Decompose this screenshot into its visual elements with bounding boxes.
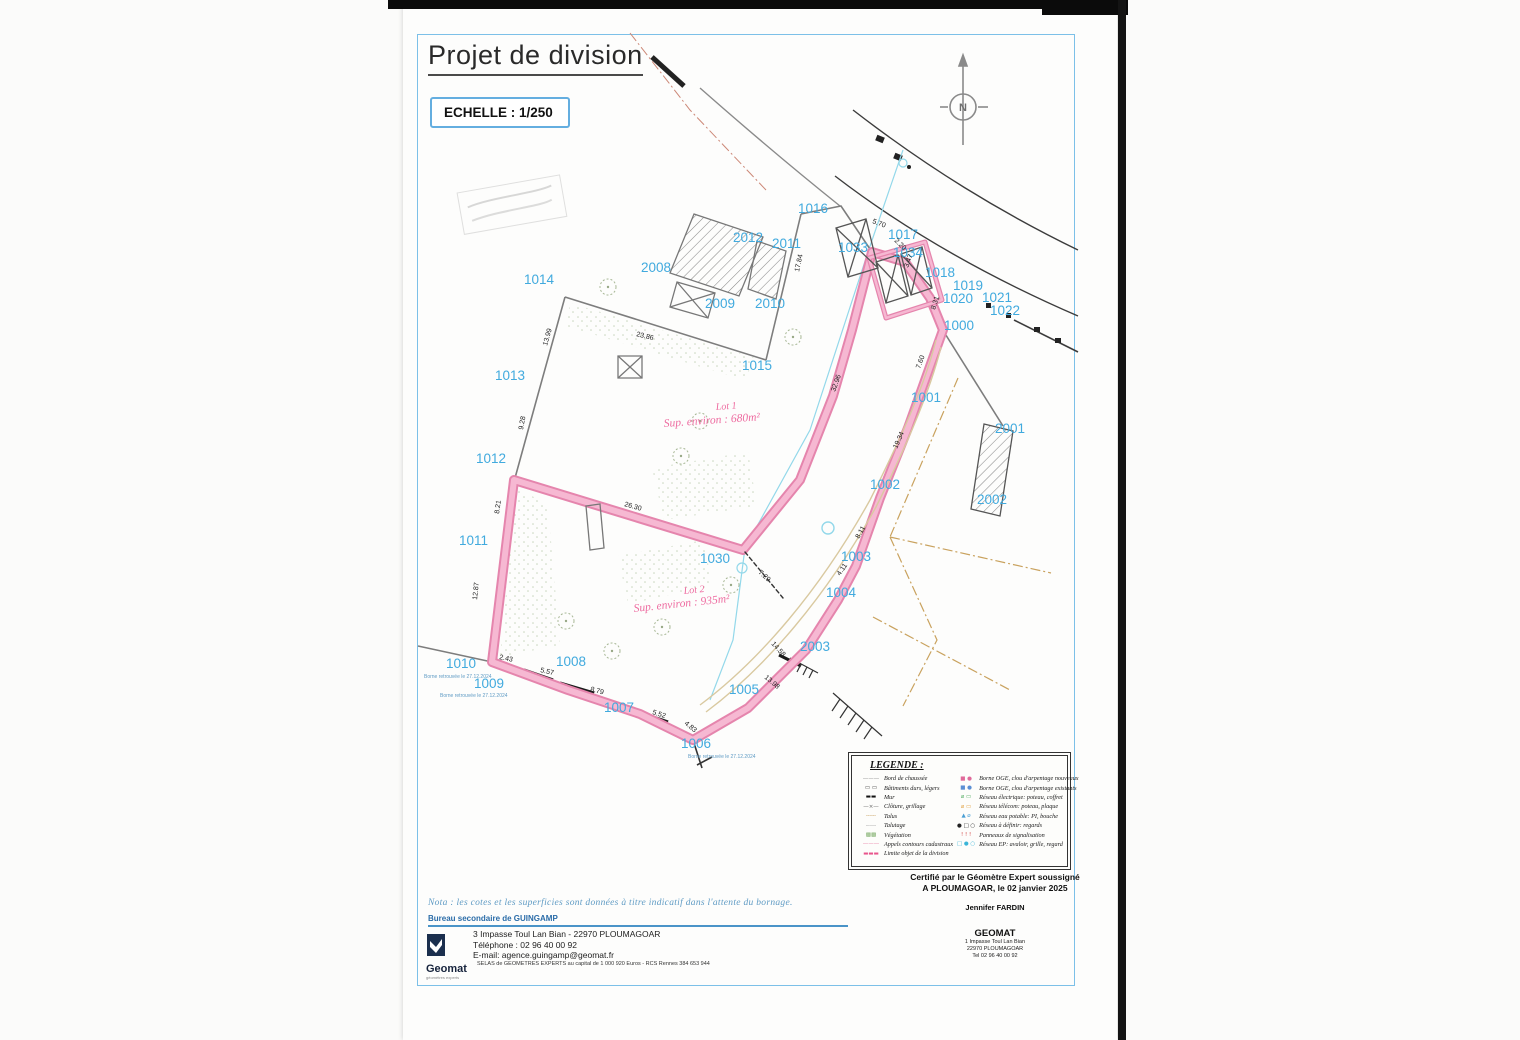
- faded-stamp: [457, 175, 567, 234]
- legend-row: ▬▬Mur: [858, 793, 953, 802]
- tree-center-dot: [661, 626, 663, 628]
- measurement-label: 9.28: [518, 416, 527, 431]
- parcel-label: 1015: [742, 358, 772, 373]
- borne-note: Borne retrouvée le 27.12.2024: [440, 693, 508, 699]
- legend-label: Végétation: [884, 832, 911, 839]
- legend-symbol: ╌╌╌: [858, 813, 884, 819]
- parcel-label: 1022: [990, 303, 1020, 318]
- cert-name: Jennifer FARDIN: [905, 903, 1085, 912]
- legend-symbol: ▬▬: [858, 794, 884, 800]
- measurement-label: 5.70: [871, 218, 886, 229]
- cert-addr2: 22970 PLOUMAGOAR: [905, 946, 1085, 953]
- parcel-label: 1020: [943, 291, 973, 306]
- legend-label: Réseau eau potable: PI, bouche: [979, 813, 1058, 820]
- legend-row: ● □ ○Réseau à définir: regards: [953, 821, 1078, 830]
- scanned-plan-page: N Lot 1 Sup. environ : 680m² Lot 2 Sup. …: [0, 0, 1520, 1040]
- legend-row: ▬▬▬Limite objet de la division: [858, 849, 953, 858]
- legend-symbol: ● □ ○: [953, 823, 979, 829]
- legend-row: ⌀ ▭Réseau télécom: poteau, plaque: [953, 802, 1078, 811]
- legend-label: Borne OGE, clou d'arpentage existants: [979, 785, 1076, 792]
- office-email: E-mail: agence.guingamp@geomat.fr: [473, 950, 660, 961]
- bureau-heading: Bureau secondaire de GUINGAMP: [428, 914, 558, 923]
- parcel-label: 2002: [977, 492, 1007, 507]
- legend-row: ⌀ ▭Réseau électrique: poteau, coffret: [953, 793, 1078, 802]
- legend-label: Talus: [884, 813, 897, 820]
- tree-center-dot: [730, 584, 732, 586]
- cert-addr1: 1 Impasse Toul Lan Bian: [905, 939, 1085, 946]
- parcel-label: 1018: [925, 265, 955, 280]
- parcel-label: 1003: [841, 549, 871, 564]
- legend-symbol: ! ! !: [953, 832, 979, 838]
- bureau-rule: [428, 925, 848, 927]
- legend-left-column: ———Bord de chaussée▭ ▭Bâtiments durs, lé…: [858, 774, 953, 859]
- office-phone: Téléphone : 02 96 40 00 92: [473, 940, 660, 951]
- parcel-label: 1033: [838, 240, 868, 255]
- parcel-label: 2001: [995, 421, 1025, 436]
- legend-label: Réseau EP: avaloir, grille, regard: [979, 841, 1063, 848]
- legend-label: Bord de chaussée: [884, 775, 927, 782]
- tree-center-dot: [565, 620, 567, 622]
- legend-label: Mur: [884, 794, 895, 801]
- legend-row: ▲ ⌀Réseau eau potable: PI, bouche: [953, 812, 1078, 821]
- parcel-label: 1007: [604, 700, 634, 715]
- legend-symbol: ▩▩: [858, 832, 884, 838]
- legend-row: ———Bord de chaussée: [858, 774, 953, 783]
- legend-label: Réseau télécom: poteau, plaque: [979, 803, 1058, 810]
- cert-line1: Certifié par le Géomètre Expert soussign…: [905, 872, 1085, 883]
- geomat-brand: Geomat: [426, 963, 472, 975]
- lane-lines: [700, 340, 941, 712]
- measurement-label: 14.58: [770, 641, 787, 659]
- parcel-label: 1011: [459, 533, 488, 548]
- legend-symbol: ———: [858, 776, 884, 782]
- parcel-label: 1006: [681, 736, 711, 751]
- legal-line: SELAS de GEOMETRES EXPERTS au capital de…: [477, 961, 747, 967]
- parcel-label: 1000: [944, 318, 974, 333]
- parcel-label: 1008: [556, 654, 586, 669]
- parcel-label: 1014: [524, 272, 555, 287]
- parcel-label: 1017: [888, 227, 918, 242]
- parcel-label: 1002: [870, 477, 900, 492]
- nota-text: Nota : les cotes et les superficies sont…: [428, 898, 793, 908]
- parcel-label: 2012: [733, 230, 763, 245]
- parcel-label: 1010: [446, 656, 476, 671]
- legend-label: Bâtiments durs, légers: [884, 785, 940, 792]
- cert-line2: A PLOUMAGOAR, le 02 janvier 2025: [905, 883, 1085, 894]
- legend-symbol: ■ ●: [953, 776, 979, 782]
- parcel-label: 2008: [641, 260, 671, 275]
- lot1-sup: Sup. environ : 680m²: [663, 411, 760, 430]
- measurement-label: 17.84: [794, 254, 805, 273]
- lot1-name: Lot 1: [714, 401, 737, 413]
- parcel-label: 1005: [729, 682, 759, 697]
- borne-note: Borne retrouvée le 27.12.2024: [688, 754, 756, 760]
- parcel-label: 1016: [798, 201, 828, 216]
- legend-symbol: ┄┄┄: [858, 823, 884, 829]
- legend-label: Borne OGE, clou d'arpentage nouveaux: [979, 775, 1078, 782]
- geomat-tagline: géomètres experts: [426, 975, 472, 980]
- legend-row: ▩▩Végétation: [858, 830, 953, 839]
- legend-right-column: ■ ●Borne OGE, clou d'arpentage nouveaux■…: [953, 774, 1078, 859]
- legend-symbol: ———: [858, 841, 884, 847]
- borne-note: Borne retrouvée le 27.12.2024: [424, 674, 492, 680]
- parcel-label: 2009: [705, 296, 735, 311]
- parcel-label: 2003: [800, 639, 830, 654]
- legend-row: —×—Clôture, grillage: [858, 802, 953, 811]
- parcel-label: 1030: [700, 551, 730, 566]
- geomat-logo-icon: [426, 933, 446, 957]
- north-letter: N: [959, 102, 967, 114]
- legend-title: LEGENDE :: [870, 760, 1067, 771]
- legend-row: ┄┄┄Talutage: [858, 821, 953, 830]
- tree-center-dot: [680, 455, 682, 457]
- legend-label: Appels contours cadastraux: [884, 841, 953, 848]
- legend-symbol: ▭ ▭: [858, 785, 884, 791]
- office-address-block: 3 Impasse Toul Lan Bian - 22970 PLOUMAGO…: [473, 929, 660, 961]
- tree-center-dot: [607, 286, 609, 288]
- legend-symbol: ⌀ ▭: [953, 794, 979, 800]
- scale-box: ECHELLE : 1/250: [430, 97, 570, 128]
- legend-inner: LEGENDE : ———Bord de chaussée▭ ▭Bâtiment…: [851, 755, 1068, 867]
- legend-symbol: ▲ ⌀: [953, 813, 979, 819]
- legend-box: LEGENDE : ———Bord de chaussée▭ ▭Bâtiment…: [848, 752, 1071, 870]
- talus-symbols: [790, 658, 882, 739]
- legend-symbol: □ ● ○: [953, 841, 979, 847]
- legend-label: Clôture, grillage: [884, 803, 925, 810]
- legend-symbol: —×—: [858, 804, 884, 810]
- tree-center-dot: [611, 650, 613, 652]
- legend-label: Limite objet de la division: [884, 850, 949, 857]
- parcel-label: 1012: [476, 451, 506, 466]
- parcel-label: 1004: [826, 585, 857, 600]
- legend-row: □ ● ○Réseau EP: avaloir, grille, regard: [953, 840, 1078, 849]
- legend-row: ■ ●Borne OGE, clou d'arpentage nouveaux: [953, 774, 1078, 783]
- legend-row: ╌╌╌Talus: [858, 812, 953, 821]
- page-title: Projet de division: [428, 40, 643, 76]
- cert-firm: GEOMAT: [905, 928, 1085, 939]
- legend-symbol: ▬▬▬: [858, 851, 884, 857]
- legend-label: Panneaux de signalisation: [979, 832, 1045, 839]
- certification-block: Certifié par le Géomètre Expert soussign…: [905, 872, 1085, 960]
- parcel-label: 2011: [772, 236, 801, 251]
- measurement-label: 8.21: [494, 500, 503, 515]
- north-arrow: N: [940, 55, 988, 145]
- legend-symbol: ⌀ ▭: [953, 804, 979, 810]
- legend-row: ■ ●Borne OGE, clou d'arpentage existants: [953, 783, 1078, 792]
- geomat-logo: Geomat géomètres experts: [426, 933, 472, 980]
- measurement-label: 12.87: [472, 582, 481, 600]
- legend-row: ! ! !Panneaux de signalisation: [953, 830, 1078, 839]
- parcel-label: 1013: [495, 368, 525, 383]
- tree-center-dot: [792, 336, 794, 338]
- legend-label: Réseau électrique: poteau, coffret: [979, 794, 1063, 801]
- office-address: 3 Impasse Toul Lan Bian - 22970 PLOUMAGO…: [473, 929, 660, 940]
- cert-tel: Tel 02 96 40 00 92: [905, 953, 1085, 960]
- legend-label: Réseau à définir: regards: [979, 822, 1042, 829]
- survey-map: N Lot 1 Sup. environ : 680m² Lot 2 Sup. …: [0, 0, 1520, 1040]
- parcel-label: 2010: [755, 296, 785, 311]
- parcel-label: 1001: [911, 390, 941, 405]
- legend-row: ———Appels contours cadastraux: [858, 840, 953, 849]
- legend-row: ▭ ▭Bâtiments durs, légers: [858, 783, 953, 792]
- legend-symbol: ■ ●: [953, 785, 979, 791]
- legend-label: Talutage: [884, 822, 905, 829]
